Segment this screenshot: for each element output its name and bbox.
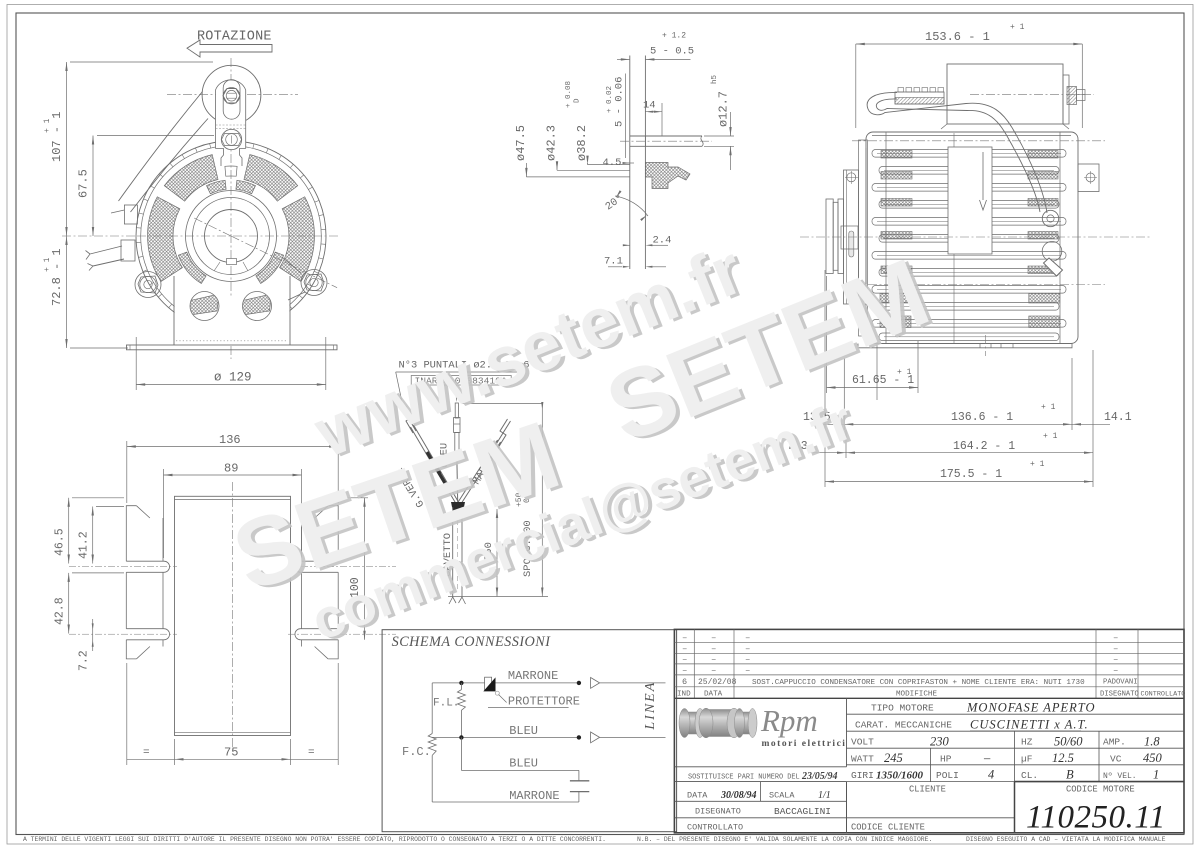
- svg-text:7.1: 7.1: [604, 256, 623, 268]
- svg-text:1/1: 1/1: [818, 790, 831, 801]
- svg-text:AMP.: AMP.: [1103, 737, 1126, 748]
- svg-text:POLI: POLI: [936, 770, 959, 781]
- svg-text:–: –: [745, 665, 750, 675]
- svg-text:+ 1: + 1: [1043, 432, 1058, 441]
- svg-text:25/02/08: 25/02/08: [698, 678, 737, 687]
- svg-text:+ 1: + 1: [897, 368, 912, 377]
- svg-text:CUSCINETTI x A.T.: CUSCINETTI x A.T.: [970, 718, 1089, 732]
- svg-text:MONOFASE APERTO: MONOFASE APERTO: [966, 701, 1096, 715]
- svg-text:PROTETTORE: PROTETTORE: [508, 695, 580, 709]
- svg-text:Rpm: Rpm: [760, 703, 818, 738]
- svg-text:+ 1: + 1: [43, 118, 52, 133]
- svg-text:67.5: 67.5: [77, 169, 91, 198]
- svg-text:LINEA: LINEA: [643, 681, 658, 731]
- svg-text:F.L.: F.L.: [433, 698, 459, 710]
- svg-text:–: –: [1113, 665, 1118, 675]
- svg-text:–: –: [745, 654, 750, 664]
- svg-text:4.5: 4.5: [603, 157, 622, 169]
- svg-text:136.6 - 1: 136.6 - 1: [951, 411, 1013, 424]
- svg-text:72.8 - 1: 72.8 - 1: [50, 248, 64, 306]
- svg-text:4: 4: [988, 768, 994, 782]
- svg-text:B: B: [1066, 768, 1074, 782]
- svg-text:SOST.CAPPUCCIO CONDENSATORE CO: SOST.CAPPUCCIO CONDENSATORE CON COPRIFAS…: [752, 679, 1085, 687]
- svg-text:CONTROLLATO: CONTROLLATO: [1141, 691, 1186, 699]
- svg-text:41.2: 41.2: [78, 531, 91, 559]
- svg-text:–: –: [983, 751, 991, 765]
- svg-text:motori elettrici: motori elettrici: [762, 739, 847, 749]
- svg-text:–: –: [745, 644, 750, 654]
- svg-text:ø 129: ø 129: [214, 371, 252, 385]
- svg-text:HP: HP: [940, 754, 952, 765]
- svg-text:SCHEMA CONNESSIONI: SCHEMA CONNESSIONI: [392, 634, 552, 650]
- svg-text:BLEU: BLEU: [509, 757, 538, 771]
- svg-text:DISEGNATO: DISEGNATO: [695, 807, 741, 817]
- svg-text:VC: VC: [1110, 754, 1122, 765]
- svg-text:TIPO MOTORE: TIPO MOTORE: [871, 703, 934, 714]
- svg-text:DATA: DATA: [704, 691, 723, 699]
- svg-text:=: =: [308, 747, 315, 759]
- svg-text:MARRONE: MARRONE: [509, 789, 559, 803]
- svg-text:ROTAZIONE: ROTAZIONE: [197, 30, 272, 45]
- svg-text:ø47.5: ø47.5: [514, 125, 528, 161]
- svg-text:–: –: [711, 665, 716, 675]
- svg-text:–: –: [711, 644, 716, 654]
- svg-text:CL.: CL.: [1021, 770, 1038, 781]
- svg-text:DATA: DATA: [687, 791, 708, 801]
- svg-text:BACCAGLINI: BACCAGLINI: [774, 806, 831, 817]
- svg-text:245: 245: [884, 751, 903, 765]
- svg-text:89: 89: [224, 462, 238, 476]
- svg-text:175.5 - 1: 175.5 - 1: [940, 468, 1002, 481]
- svg-text:450: 450: [1143, 751, 1163, 765]
- svg-text:WATT: WATT: [851, 754, 874, 765]
- svg-text:BLEU: BLEU: [509, 724, 538, 738]
- svg-text:1: 1: [1153, 768, 1159, 782]
- svg-text:GIRI: GIRI: [851, 770, 874, 781]
- svg-text:A TERMINI DELLE VIGENTI LEGGI: A TERMINI DELLE VIGENTI LEGGI SUI DIRITT…: [23, 836, 606, 843]
- svg-text:23/05/94: 23/05/94: [801, 771, 838, 782]
- svg-text:2.4: 2.4: [653, 235, 672, 247]
- svg-text:CONTROLLATO: CONTROLLATO: [687, 822, 743, 832]
- svg-text:–: –: [682, 644, 687, 654]
- svg-text:D: D: [574, 98, 582, 103]
- svg-text:HZ: HZ: [1021, 737, 1033, 748]
- svg-text:+ 1: + 1: [1030, 460, 1045, 469]
- svg-text:–: –: [1113, 633, 1118, 643]
- svg-text:1.8: 1.8: [1144, 735, 1160, 749]
- svg-text:153.6 - 1: 153.6 - 1: [925, 30, 990, 44]
- svg-text:Nº VEL.: Nº VEL.: [1103, 772, 1137, 781]
- svg-text:DISEGNO ESEGUITO A CAD – VIETA: DISEGNO ESEGUITO A CAD – VIETATA LA MODI…: [966, 836, 1166, 843]
- svg-text:+ 0.02: + 0.02: [606, 86, 614, 113]
- svg-text:136: 136: [219, 433, 241, 447]
- svg-text:–: –: [1113, 654, 1118, 664]
- svg-text:+ 1.2: + 1.2: [662, 32, 686, 41]
- svg-text:164.2 - 1: 164.2 - 1: [953, 440, 1015, 453]
- svg-text:1350/1600: 1350/1600: [876, 770, 924, 782]
- svg-text:230: 230: [930, 735, 950, 749]
- svg-text:30/08/94: 30/08/94: [720, 790, 757, 801]
- svg-text:DISEGNATO: DISEGNATO: [1100, 691, 1139, 699]
- svg-text:110250.11: 110250.11: [1026, 800, 1166, 836]
- svg-text:–: –: [745, 633, 750, 643]
- svg-text:CLIENTE: CLIENTE: [909, 785, 946, 795]
- svg-text:+ 1: + 1: [1041, 403, 1056, 412]
- svg-text:VOLT: VOLT: [851, 737, 874, 748]
- svg-text:SCALA: SCALA: [769, 791, 795, 801]
- svg-text:IND: IND: [677, 691, 691, 699]
- svg-text:CARAT. MECCANICHE: CARAT. MECCANICHE: [855, 720, 952, 731]
- svg-text:–: –: [682, 665, 687, 675]
- svg-text:107 - 1: 107 - 1: [50, 112, 64, 162]
- svg-text:ø12.7: ø12.7: [717, 91, 731, 127]
- svg-text:75: 75: [224, 746, 238, 760]
- svg-text:MARRONE: MARRONE: [508, 669, 558, 683]
- svg-text:SOSTITUISCE PARI NUMERO DEL: SOSTITUISCE PARI NUMERO DEL: [688, 774, 800, 782]
- svg-text:ø38.2: ø38.2: [575, 125, 589, 161]
- svg-text:µF: µF: [1021, 754, 1033, 765]
- svg-text:7.2: 7.2: [78, 650, 91, 671]
- svg-text:5 - 0.06: 5 - 0.06: [614, 77, 626, 127]
- svg-text:–: –: [682, 654, 687, 664]
- svg-text:N.B. – DEL PRESENTE DISEGNO E': N.B. – DEL PRESENTE DISEGNO E' VALIDA SO…: [637, 836, 932, 843]
- svg-text:CODICE MOTORE: CODICE MOTORE: [1066, 785, 1135, 795]
- svg-text:ø42.3: ø42.3: [545, 125, 559, 161]
- svg-text:=: =: [143, 747, 150, 759]
- svg-text:–: –: [711, 633, 716, 643]
- svg-text:h5: h5: [711, 74, 719, 84]
- svg-text:50/60: 50/60: [1054, 735, 1083, 749]
- svg-text:–: –: [711, 654, 716, 664]
- svg-text:F.C.: F.C.: [402, 745, 431, 759]
- svg-text:–: –: [682, 633, 687, 643]
- svg-text:CODICE CLIENTE: CODICE CLIENTE: [851, 822, 925, 832]
- svg-text:MODIFICHE: MODIFICHE: [896, 691, 937, 699]
- svg-text:42.8: 42.8: [54, 597, 67, 625]
- svg-text:6: 6: [682, 677, 687, 687]
- svg-text:+ 0.08: + 0.08: [565, 81, 573, 108]
- svg-text:+ 1: + 1: [43, 257, 52, 272]
- svg-text:46.5: 46.5: [54, 528, 67, 556]
- svg-text:+ 1: + 1: [1010, 23, 1025, 32]
- svg-text:–: –: [1113, 644, 1118, 654]
- svg-text:12.5: 12.5: [1052, 751, 1074, 765]
- svg-text:14.1: 14.1: [1104, 411, 1132, 424]
- svg-text:PADOVANI: PADOVANI: [1103, 679, 1138, 687]
- svg-text:5 - 0.5: 5 - 0.5: [650, 46, 694, 58]
- svg-text:14: 14: [643, 100, 656, 112]
